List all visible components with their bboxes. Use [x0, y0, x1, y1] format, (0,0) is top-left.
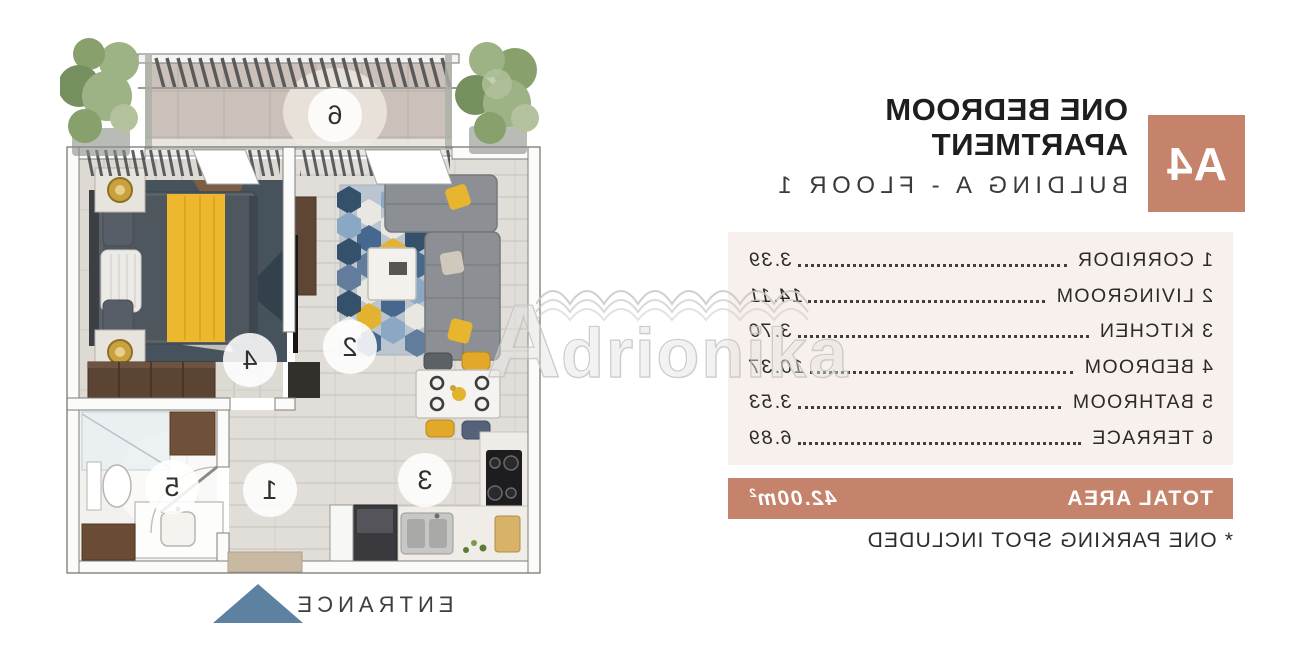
corner-cabinet	[288, 362, 320, 398]
kitchen-stub-wall	[330, 505, 353, 561]
page-title-line2: APARTMENT	[708, 127, 1128, 162]
room-circle-bathroom: 5	[164, 472, 179, 502]
bed-yellow-runner	[167, 194, 225, 342]
room-area: 3.39	[748, 249, 792, 272]
leader-dots	[798, 264, 1067, 267]
room-area: 14.11	[748, 285, 802, 308]
cutting-board	[495, 516, 520, 552]
flyer: A4 ONE BEDROOM APARTMENT BULDING A - FLO…	[0, 0, 1300, 650]
room-circle-livingroom: 2	[342, 332, 357, 362]
parking-footnote: * ONE PARKING SPOT INCLUDED	[728, 529, 1233, 553]
room-area: 3.53	[748, 391, 792, 414]
leader-dots	[798, 406, 1062, 409]
entrance-arrow-icon	[213, 584, 303, 623]
room-name: LIVINGROOM	[1055, 285, 1194, 308]
room-row-kitchen: 3 KITCHEN 3.70	[748, 320, 1213, 343]
room-num: 1	[1201, 249, 1213, 272]
basin	[161, 512, 195, 546]
room-circle-bedroom: 4	[242, 345, 257, 375]
open-door	[365, 150, 452, 184]
room-num: 4	[1201, 356, 1213, 379]
sofa-pillow	[439, 250, 464, 275]
room-num: 2	[1201, 285, 1213, 308]
room-list: 1 CORRIDOR 3.39 2 LIVINGROOM 14.11 3 KIT…	[728, 232, 1233, 465]
tree-icon	[60, 38, 139, 156]
floor-plan: ENTRANCE	[60, 0, 545, 650]
toilet-tank	[87, 462, 101, 510]
room-area: 6.89	[748, 427, 792, 450]
room-name: TERRACE	[1091, 427, 1194, 450]
room-circle-corridor: 1	[262, 475, 277, 505]
total-area-bar: TOTAL AREA 42.00m2	[728, 478, 1233, 519]
entrance-mat	[228, 552, 302, 572]
room-row-terrace: 6 TERRACE 6.89	[748, 427, 1213, 450]
toilet	[103, 465, 131, 507]
bath-shelf	[170, 412, 215, 455]
leader-dots	[798, 442, 1081, 445]
dining-chair-yellow	[462, 352, 490, 370]
room-area: 3.70	[748, 320, 792, 343]
room-name: BATHROOM	[1072, 391, 1194, 414]
room-row-livingroom: 2 LIVINGROOM 14.11	[748, 285, 1213, 308]
room-circle-kitchen: 3	[417, 465, 432, 495]
room-num: 3	[1201, 320, 1213, 343]
mirrored-stage: A4 ONE BEDROOM APARTMENT BULDING A - FLO…	[0, 0, 1300, 650]
room-row-bedroom: 4 BEDROOM 10.37	[748, 356, 1213, 379]
total-area-label: TOTAL AREA	[1066, 487, 1213, 511]
room-name: CORRIDOR	[1077, 249, 1194, 272]
bath-cabinet	[82, 524, 135, 560]
page-title-line1: ONE BEDROOM	[708, 92, 1128, 127]
leader-dots	[810, 371, 1074, 374]
room-name: BEDROOM	[1083, 356, 1194, 379]
room-circle-terrace: 6	[327, 100, 342, 130]
entrance-label: ENTRANCE	[292, 592, 453, 617]
dining-chair-gray	[424, 353, 452, 370]
room-row-corridor: 1 CORRIDOR 3.39	[748, 249, 1213, 272]
room-num: 6	[1201, 427, 1213, 450]
leader-dots	[798, 335, 1089, 338]
title-block: ONE BEDROOM APARTMENT BULDING A - FLOOR …	[708, 92, 1128, 200]
room-name: KITCHEN	[1099, 320, 1194, 343]
unit-badge: A4	[1148, 115, 1245, 212]
room-row-bathroom: 5 BATHROOM 3.53	[748, 391, 1213, 414]
total-area-value: 42.00m2	[748, 486, 836, 511]
tree-icon	[455, 42, 539, 154]
leader-dots	[808, 300, 1045, 303]
dining-chair-yellow	[426, 420, 454, 437]
bed-headboard	[89, 190, 99, 346]
room-num: 5	[1201, 391, 1213, 414]
terrace-threshold	[145, 139, 452, 150]
building-floor-subtitle: BULDING A - FLOOR 1	[708, 172, 1128, 200]
room-area: 10.37	[748, 356, 804, 379]
